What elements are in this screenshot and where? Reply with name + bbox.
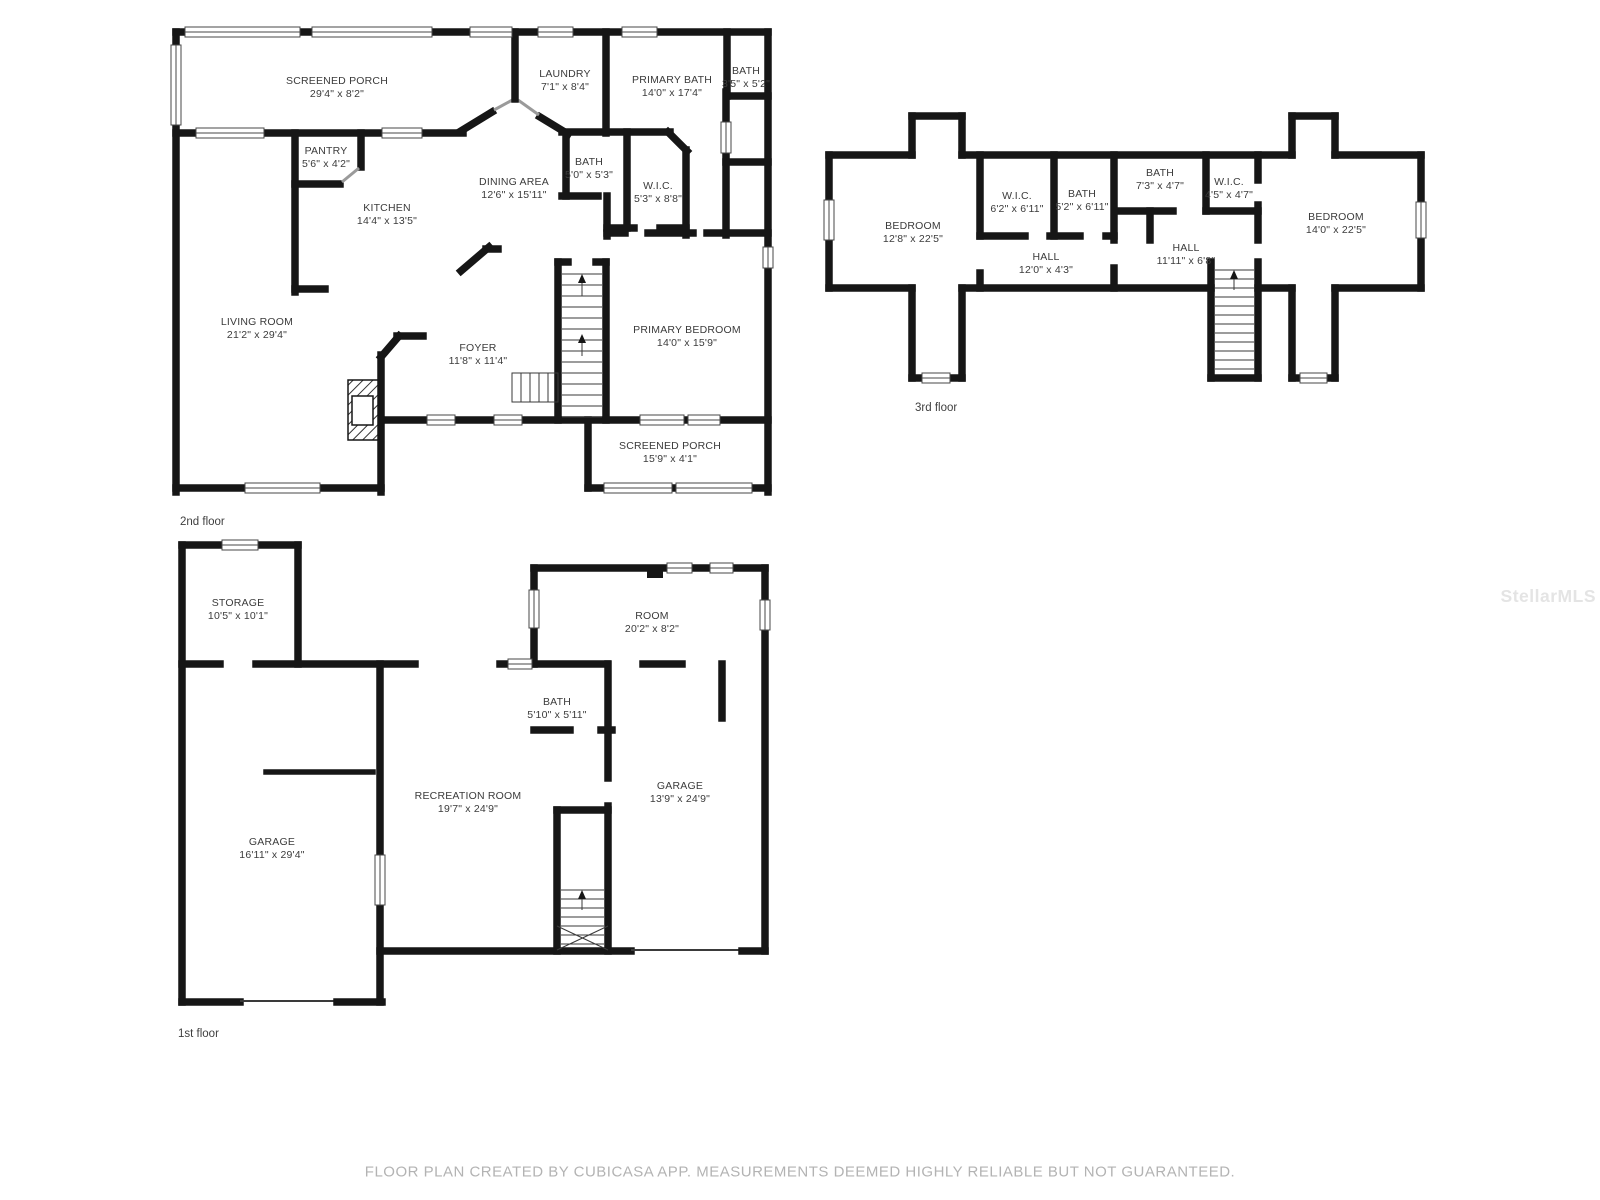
staircase-first-floor xyxy=(557,890,608,950)
room-dims: 4'5" x 4'7" xyxy=(1205,189,1253,201)
room-dims: 12'8" x 22'5" xyxy=(883,233,943,245)
room-label-living-room: LIVING ROOM21'2" x 29'4" xyxy=(221,316,293,342)
room-dims: 14'0" x 22'5" xyxy=(1306,224,1366,236)
room-label-pantry: PANTRY5'6" x 4'2" xyxy=(302,145,350,171)
floor-label-first: 1st floor xyxy=(178,1028,219,1040)
footer-disclaimer: FLOOR PLAN CREATED BY CUBICASA APP. MEAS… xyxy=(365,1164,1235,1181)
room-name: BATH xyxy=(575,156,603,168)
room-name: PRIMARY BATH xyxy=(632,74,712,86)
room-name: LAUNDRY xyxy=(539,68,590,80)
room-label-storage: STORAGE10'5" x 10'1" xyxy=(208,597,268,623)
room-name: PRIMARY BEDROOM xyxy=(633,324,741,336)
room-dims: 11'11" x 6'8" xyxy=(1157,255,1216,267)
room-label-bath-left: BATH5'2" x 6'11" xyxy=(1055,188,1108,214)
room-name: BEDROOM xyxy=(1308,211,1364,223)
stellar-mls-watermark: StellarMLS xyxy=(1501,586,1596,607)
room-label-foyer: FOYER11'8" x 11'4" xyxy=(449,342,508,368)
room-dims: 11'8" x 11'4" xyxy=(449,355,508,367)
room-label-laundry: LAUNDRY7'1" x 8'4" xyxy=(539,68,590,94)
room-label-wic-right: W.I.C.4'5" x 4'7" xyxy=(1205,176,1253,202)
room-dims: 20'2" x 8'2" xyxy=(625,623,679,635)
room-name: BATH xyxy=(543,696,571,708)
room-label-wic: W.I.C.5'3" x 8'8" xyxy=(634,180,682,206)
staircase-third-floor xyxy=(1215,270,1254,369)
room-dims: 5'6" x 4'2" xyxy=(302,158,350,170)
room-name: SCREENED PORCH xyxy=(286,75,388,87)
room-name: FOYER xyxy=(459,342,496,354)
room-dims: 13'9" x 24'9" xyxy=(650,793,710,805)
room-dims: 14'0" x 15'9" xyxy=(657,337,717,349)
floor-plan-page: SCREENED PORCH29'4" x 8'2" LAUNDRY7'1" x… xyxy=(0,0,1600,1200)
room-dims: 10'5" x 10'1" xyxy=(208,610,268,622)
room-name: GARAGE xyxy=(249,836,295,848)
room-name: SCREENED PORCH xyxy=(619,440,721,452)
room-name: HALL xyxy=(1032,251,1059,263)
room-name: RECREATION ROOM xyxy=(415,790,522,802)
room-label-bath-small: BATH3'5" x 5'2" xyxy=(722,65,770,91)
room-dims: 12'0" x 4'3" xyxy=(1019,264,1073,276)
room-label-bedroom-left: BEDROOM12'8" x 22'5" xyxy=(883,220,943,246)
floor-label-second: 2nd floor xyxy=(180,516,225,528)
room-dims: 5'3" x 8'8" xyxy=(634,193,682,205)
room-name: W.I.C. xyxy=(1214,176,1244,188)
room-name: ROOM xyxy=(635,610,668,622)
room-dims: 5'2" x 6'11" xyxy=(1055,201,1108,213)
room-name: DINING AREA xyxy=(479,176,549,188)
room-label-dining-area: DINING AREA12'6" x 15'11" xyxy=(479,176,549,202)
room-dims: 5'0" x 5'3" xyxy=(565,169,613,181)
room-dims: 14'0" x 17'4" xyxy=(642,87,702,99)
room-dims: 21'2" x 29'4" xyxy=(227,329,287,341)
room-name: STORAGE xyxy=(212,597,265,609)
room-label-recreation-room: RECREATION ROOM19'7" x 24'9" xyxy=(415,790,522,816)
room-name: BEDROOM xyxy=(885,220,941,232)
room-name: W.I.C. xyxy=(1002,190,1032,202)
room-label-bath-first: BATH5'10" x 5'11" xyxy=(527,696,586,722)
room-label-primary-bath: PRIMARY BATH14'0" x 17'4" xyxy=(632,74,712,100)
room-name: PANTRY xyxy=(305,145,348,157)
room-dims: 12'6" x 15'11" xyxy=(481,189,546,201)
room-label-wic-left: W.I.C.6'2" x 6'11" xyxy=(990,190,1043,216)
room-label-bedroom-right: BEDROOM14'0" x 22'5" xyxy=(1306,211,1366,237)
floor-plan-third-walls xyxy=(829,116,1421,378)
room-name: HALL xyxy=(1172,242,1199,254)
room-label-primary-bedroom: PRIMARY BEDROOM14'0" x 15'9" xyxy=(633,324,741,350)
room-name: BATH xyxy=(1146,167,1174,179)
room-dims: 19'7" x 24'9" xyxy=(438,803,498,815)
room-label-screened-porch-bottom: SCREENED PORCH15'9" x 4'1" xyxy=(619,440,721,466)
room-dims: 29'4" x 8'2" xyxy=(310,88,364,100)
room-name: BATH xyxy=(732,65,760,77)
room-dims: 5'10" x 5'11" xyxy=(527,709,586,721)
floor-label-third: 3rd floor xyxy=(915,402,957,414)
room-label-bath-mid: BATH5'0" x 5'3" xyxy=(565,156,613,182)
room-dims: 15'9" x 4'1" xyxy=(643,453,697,465)
room-label-hall-left: HALL12'0" x 4'3" xyxy=(1019,251,1073,277)
room-dims: 3'5" x 5'2" xyxy=(722,78,770,90)
room-dims: 14'4" x 13'5" xyxy=(357,215,417,227)
room-dims: 16'11" x 29'4" xyxy=(239,849,304,861)
room-label-garage-right: GARAGE13'9" x 24'9" xyxy=(650,780,710,806)
room-label-bath-right: BATH7'3" x 4'7" xyxy=(1136,167,1184,193)
room-name: GARAGE xyxy=(657,780,703,792)
room-dims: 7'1" x 8'4" xyxy=(541,81,589,93)
room-name: W.I.C. xyxy=(643,180,673,192)
room-label-hall-right: HALL11'11" x 6'8" xyxy=(1157,242,1216,268)
room-dims: 6'2" x 6'11" xyxy=(990,203,1043,215)
room-name: LIVING ROOM xyxy=(221,316,293,328)
room-dims: 7'3" x 4'7" xyxy=(1136,180,1184,192)
fireplace-icon xyxy=(348,380,378,440)
room-label-room: ROOM20'2" x 8'2" xyxy=(625,610,679,636)
room-name: BATH xyxy=(1068,188,1096,200)
room-label-screened-porch-top: SCREENED PORCH29'4" x 8'2" xyxy=(286,75,388,101)
room-label-garage-left: GARAGE16'11" x 29'4" xyxy=(239,836,304,862)
room-label-kitchen: KITCHEN14'4" x 13'5" xyxy=(357,202,417,228)
room-name: KITCHEN xyxy=(363,202,411,214)
